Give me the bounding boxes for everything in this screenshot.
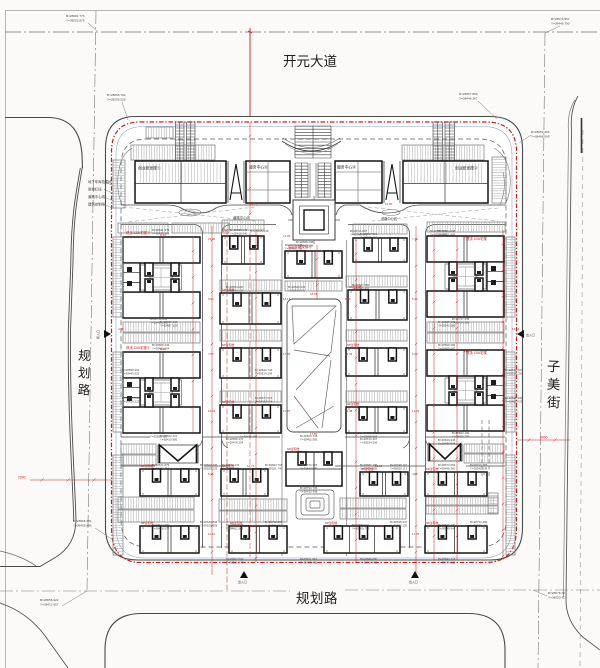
svg-text:Y=38466.788: Y=38466.788 [285,247,303,251]
svg-text:7.50: 7.50 [208,352,214,356]
svg-text:Y=38539.233: Y=38539.233 [200,467,218,471]
svg-text:Y=38555.113: Y=38555.113 [390,467,407,471]
svg-text:Y=38418.840: Y=38418.840 [230,232,248,236]
svg-text:6#住宅楼: 6#住宅楼 [287,446,299,451]
svg-text:道路中心线: 道路中心线 [233,215,251,220]
svg-text:Y=38479.662: Y=38479.662 [438,561,456,565]
svg-text:B=28652.306: B=28652.306 [531,130,550,134]
svg-text:Y=38452.508: Y=38452.508 [226,527,244,531]
svg-text:6#住宅楼: 6#住宅楼 [347,342,359,347]
svg-text:创业研发楼②: 创业研发楼② [455,166,478,171]
svg-text:B=28666.381: B=28666.381 [73,519,92,523]
svg-text:Y=38468.584: Y=38468.584 [360,435,378,439]
svg-text:17.70: 17.70 [283,409,291,413]
svg-text:4.58: 4.58 [118,327,124,331]
svg-text:出入口: 出入口 [409,579,418,584]
svg-text:B=28656.922: B=28656.922 [40,598,59,602]
svg-text:Y=38448.267: Y=38448.267 [459,97,478,101]
svg-text:5.21: 5.21 [208,472,214,476]
svg-text:Y=38509.795: Y=38509.795 [352,527,370,531]
svg-text:6#住宅楼: 6#住宅楼 [222,342,234,347]
svg-text:子: 子 [546,359,560,375]
svg-text:17.75: 17.75 [412,532,420,536]
svg-text:6#住宅楼: 6#住宅楼 [325,520,337,525]
svg-text:Y=38560.975: Y=38560.975 [350,233,368,237]
svg-text:6#住宅楼: 6#住宅楼 [222,399,234,404]
svg-text:8.00: 8.00 [160,347,166,351]
svg-text:6.94: 6.94 [208,297,214,301]
svg-text:用地红线: 用地红线 [88,187,102,192]
svg-text:17.55: 17.55 [283,352,291,356]
svg-text:Y=38462.083: Y=38462.083 [300,438,318,442]
svg-text:6#住宅楼: 6#住宅楼 [230,520,242,525]
svg-text:开元大道: 开元大道 [283,54,337,69]
svg-text:14.29: 14.29 [412,409,420,413]
svg-text:创业研发楼①: 创业研发楼① [138,166,161,171]
svg-text:Y=38520.42: Y=38520.42 [548,596,565,600]
svg-text:Y=38562.255: Y=38562.255 [390,524,408,528]
svg-text:Y=38405.886: Y=38405.886 [73,524,92,528]
svg-text:Y=38256.528: Y=38256.528 [107,98,126,102]
svg-text:10.63: 10.63 [208,409,216,413]
svg-text:服务中心⑪: 服务中心⑪ [249,165,268,170]
svg-text:9.16: 9.16 [247,524,253,528]
svg-text:建筑控制线: 建筑控制线 [88,202,106,207]
svg-text:16.71: 16.71 [250,202,258,206]
svg-text:B=28678.70: B=28678.70 [548,591,565,595]
svg-text:Y=38412.957: Y=38412.957 [40,603,59,607]
svg-text:地下车库范围线: 地下车库范围线 [88,179,112,184]
svg-text:Y=38516.070: Y=38516.070 [226,561,244,565]
svg-text:11.51: 11.51 [208,532,215,536]
svg-text:6#住宅楼: 6#住宅楼 [361,466,373,471]
svg-text:12.47: 12.47 [464,349,472,353]
svg-text:Y=38520.653: Y=38520.653 [200,524,218,528]
svg-text:Y=38549.970: Y=38549.970 [288,289,306,293]
svg-text:B=28645.049: B=28645.049 [250,229,269,233]
svg-text:Y=38416.263: Y=38416.263 [240,435,258,439]
svg-text:Y=38430.524: Y=38430.524 [255,400,273,404]
svg-text:15.65: 15.65 [375,464,383,468]
svg-text:Y=38589.115: Y=38589.115 [470,524,487,528]
svg-text:美: 美 [546,377,560,393]
svg-text:划: 划 [77,366,90,381]
svg-text:13.83: 13.83 [375,524,383,528]
svg-text:14.94: 14.94 [512,327,520,331]
svg-text:街: 街 [547,395,561,411]
svg-text:Y=38488.023: Y=38488.023 [505,400,523,404]
svg-text:路: 路 [77,382,91,398]
svg-text:8.90: 8.90 [345,297,351,301]
svg-text:6#住宅楼: 6#住宅楼 [141,463,153,468]
svg-text:4.62: 4.62 [412,472,418,476]
svg-text:18.99: 18.99 [310,292,318,296]
svg-text:Y=38586.920: Y=38586.920 [150,435,168,439]
svg-text:Y=38489.608: Y=38489.608 [438,442,456,446]
svg-text:Y=38469.485: Y=38469.485 [300,561,318,565]
svg-text:5.22: 5.22 [412,297,418,301]
svg-text:Y=38468.069: Y=38468.069 [531,135,550,139]
svg-text:Y=38446.790: Y=38446.790 [551,22,570,26]
svg-text:Y=38534.506: Y=38534.506 [360,441,378,445]
svg-text:Y=38434.296: Y=38434.296 [152,467,170,471]
svg-text:Y=38514.291: Y=38514.291 [505,372,523,376]
svg-text:Y=38543.835: Y=38543.835 [300,467,318,471]
svg-text:Y=38499.831: Y=38499.831 [150,321,168,325]
svg-text:6#住宅楼: 6#住宅楼 [141,520,153,525]
svg-text:6#住宅楼: 6#住宅楼 [222,463,234,468]
svg-text:12.35: 12.35 [283,234,291,238]
svg-text:3000: 3000 [540,436,548,440]
svg-text:6#住宅楼: 6#住宅楼 [347,401,359,406]
svg-text:现浇.C05宅楼②: 现浇.C05宅楼② [126,345,151,350]
svg-text:B=28656.702: B=28656.702 [107,93,126,97]
svg-text:Y=38416.577: Y=38416.577 [152,527,170,531]
svg-text:Y=38501.754: Y=38501.754 [265,524,283,528]
svg-text:7.19: 7.19 [412,237,418,241]
svg-text:服务中心⑫: 服务中心⑫ [337,165,356,170]
svg-text:道路中心线: 道路中心线 [381,216,398,221]
svg-text:2000: 2000 [18,476,26,480]
svg-text:18.17: 18.17 [283,297,291,301]
svg-text:规划路: 规划路 [296,591,338,606]
svg-text:13.72: 13.72 [247,464,255,468]
svg-text:6#住宅楼: 6#住宅楼 [426,520,438,525]
svg-text:出入口: 出入口 [238,579,247,584]
svg-text:Y=38549.945: Y=38549.945 [438,527,456,531]
svg-text:14.48: 14.48 [345,409,353,413]
svg-text:Y=38434.999: Y=38434.999 [452,321,470,325]
svg-text:Y=38529.953: Y=38529.953 [430,233,448,237]
svg-text:Y=38409.239: Y=38409.239 [452,435,470,439]
svg-text:Y=38443.625: Y=38443.625 [122,372,140,376]
svg-text:6.95: 6.95 [222,229,228,233]
svg-text:17.87: 17.87 [310,432,318,436]
svg-text:Y=38448.381: Y=38448.381 [438,467,456,471]
svg-text:16.36: 16.36 [208,237,216,241]
svg-text:Y=38252.875: Y=38252.875 [66,19,85,23]
svg-text:6#住宅楼: 6#住宅楼 [426,466,438,471]
svg-text:出入口: 出入口 [526,332,535,337]
svg-text:6.29: 6.29 [412,352,418,356]
svg-text:Y=38416.062: Y=38416.062 [360,561,378,565]
svg-text:现浇.C05宅楼①: 现浇.C05宅楼① [126,230,151,235]
svg-text:Y=38456.047: Y=38456.047 [438,347,456,351]
svg-text:B=28681.773: B=28681.773 [66,14,85,18]
svg-text:10.50: 10.50 [385,202,393,206]
svg-text:道路中心线: 道路中心线 [88,194,106,199]
svg-text:Y=38514.294: Y=38514.294 [255,372,273,376]
svg-text:Y=38521.740: Y=38521.740 [265,467,283,471]
svg-text:6#住宅楼: 6#住宅楼 [222,287,234,292]
svg-text:6.33: 6.33 [160,233,166,237]
svg-text:Y=38410.408: Y=38410.408 [300,490,318,494]
svg-text:B=28657.859: B=28657.859 [459,92,478,96]
svg-text:Y=38476.254: Y=38476.254 [226,441,244,445]
svg-text:6#住宅楼: 6#住宅楼 [349,284,361,289]
svg-text:Y=38415.223: Y=38415.223 [122,400,140,404]
svg-text:10.45: 10.45 [345,352,353,356]
svg-text:Y=38541.339: Y=38541.339 [470,467,488,471]
svg-text:B=28674.557: B=28674.557 [551,17,570,21]
svg-text:侧入口: 侧入口 [95,330,100,339]
svg-text:6.53: 6.53 [464,235,470,239]
svg-text:规: 规 [78,348,92,364]
